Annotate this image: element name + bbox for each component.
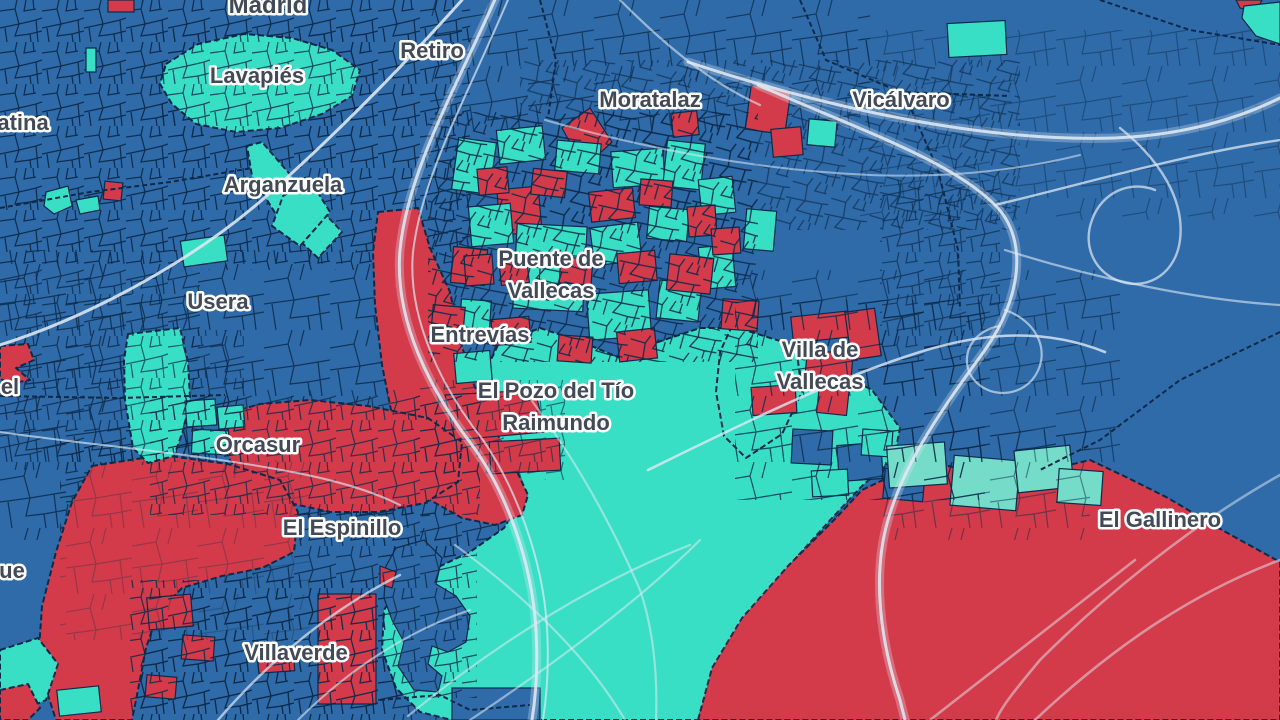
map-label-latina-partial: atina (0, 110, 49, 135)
texture-red-southwest (60, 460, 310, 640)
parcel-red (108, 0, 134, 12)
map-label-orcasur: Orcasur (216, 432, 301, 457)
map-label-left-edge-partial-el: el (1, 374, 19, 399)
parcel-teal (807, 119, 837, 147)
map-label-retiro: Retiro (400, 38, 464, 63)
map-label-vicalvaro: Vicálvaro (852, 87, 949, 112)
map-label-entrevias: Entrevías (430, 322, 529, 347)
map-label-el-espinillo: El Espinillo (283, 515, 402, 540)
texture-villa-southeast (880, 430, 1090, 540)
parcel-teal (947, 21, 1007, 58)
map-label-el-gallinero: El Gallinero (1099, 507, 1221, 532)
parcel-teal (86, 48, 96, 72)
parcel-red (103, 181, 123, 201)
map-label-usera: Usera (187, 289, 249, 314)
map-label-arganzuela: Arganzuela (224, 172, 343, 197)
map-viewport[interactable]: MadridLavapiésRetiroMoratalazVicálvaroat… (0, 0, 1280, 720)
map-label-villaverde: Villaverde (244, 640, 348, 665)
map-label-madrid: Madrid (229, 0, 308, 19)
map-label-lavapies: Lavapiés (210, 63, 304, 88)
parcel-teal (180, 235, 227, 267)
parcel-teal (57, 686, 101, 716)
parcel-red (771, 127, 803, 158)
map-label-left-edge-partial-ue: ue (0, 558, 25, 583)
choropleth-map-canvas[interactable]: MadridLavapiésRetiroMoratalazVicálvaroat… (0, 0, 1280, 720)
map-label-moratalaz: Moratalaz (599, 87, 700, 112)
